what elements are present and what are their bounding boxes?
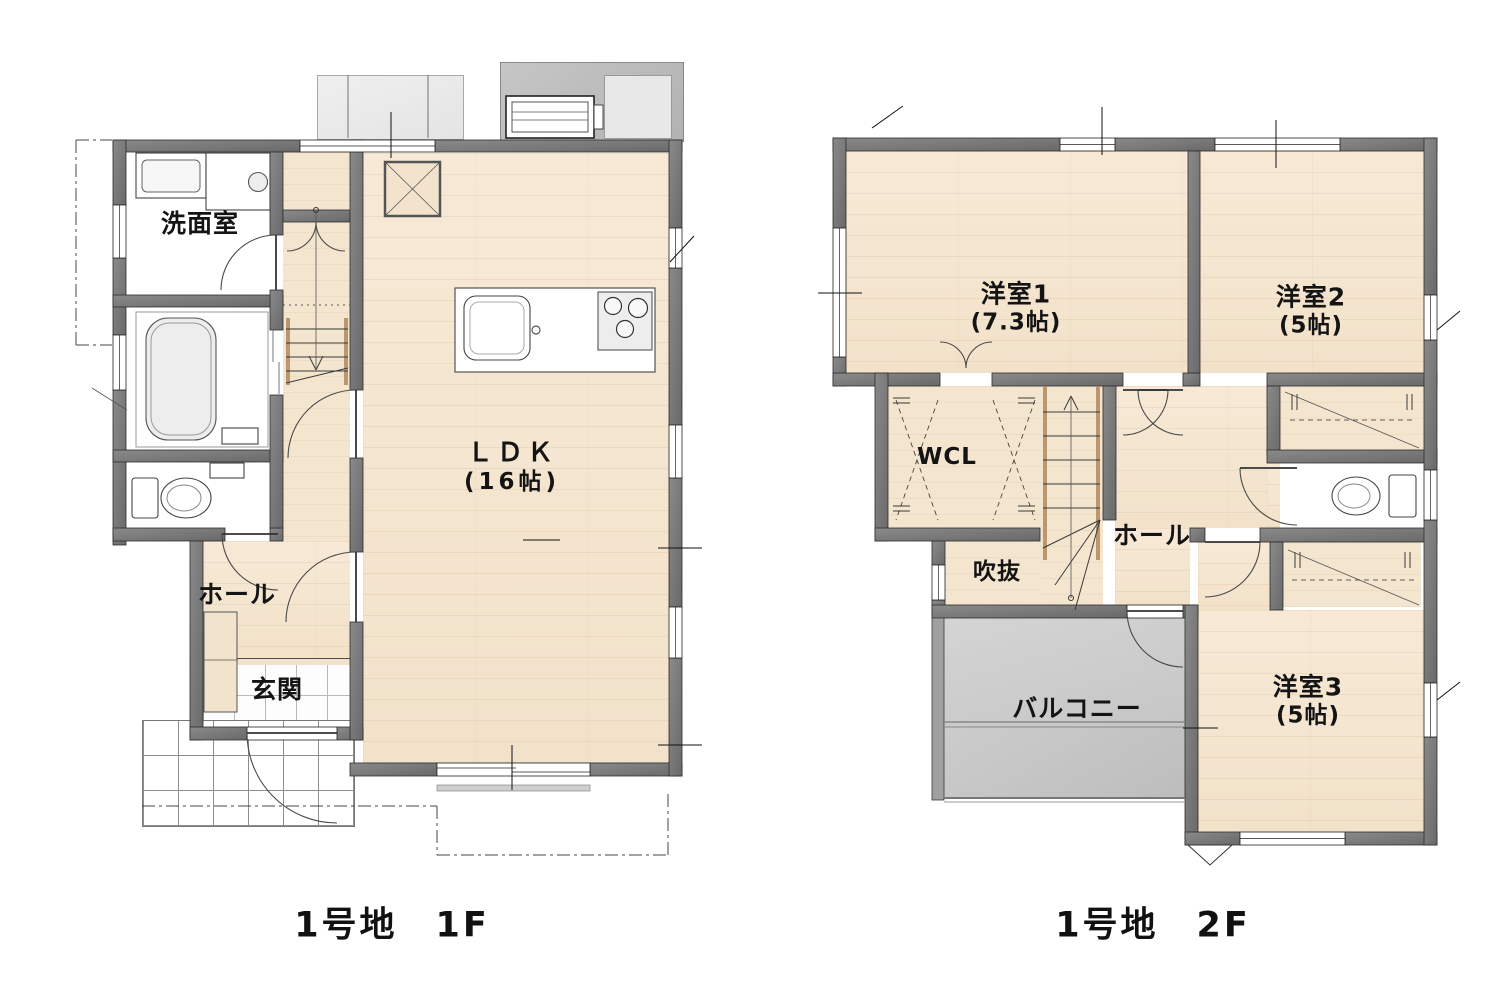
duct-shaft	[385, 162, 440, 216]
toilet-1f	[132, 463, 244, 518]
caption-floor1: 1号地 1F	[294, 897, 490, 948]
stairs-2f	[1043, 386, 1100, 610]
label-yoshitsu2: 洋室2 (5帖)	[1276, 284, 1346, 339]
label-hall-1f: ホール	[198, 581, 276, 610]
vanity-sink	[136, 153, 270, 210]
toilet-2f	[1332, 475, 1416, 517]
stairs-1f	[283, 208, 350, 386]
dimension-ticks-2f	[818, 106, 1460, 728]
label-balcony: バルコニー	[1012, 695, 1142, 724]
yoshitsu3-closet-symbols	[1288, 550, 1419, 605]
kitchen-island	[455, 288, 655, 372]
label-genkan: 玄関	[251, 676, 303, 705]
label-wcl: WCL	[917, 444, 977, 470]
caption-floor2: 1号地 2F	[1055, 897, 1251, 948]
section-marker	[1188, 845, 1232, 865]
label-ldk: ＬＤＫ (16帖)	[464, 439, 560, 495]
terrace-step	[437, 785, 590, 791]
label-fukinuke: 吹抜	[973, 559, 1021, 585]
hall-cabinet	[204, 612, 237, 712]
floor-plan-canvas: 洗面室 ＬＤＫ (16帖) ホール 玄関 洋室1 (7.3帖) 洋室2 (5帖)…	[0, 0, 1500, 1000]
label-yoshitsu1: 洋室1 (7.3帖)	[971, 281, 1062, 336]
label-senmen: 洗面室	[161, 210, 239, 239]
plan-linework	[0, 0, 1500, 1000]
canopy-lines	[348, 75, 428, 138]
balcony-railing	[944, 722, 1185, 802]
yoshitsu2-closet-symbols	[1285, 392, 1419, 448]
label-hall-2f: ホール	[1113, 522, 1191, 551]
outdoor-unit	[506, 96, 603, 138]
label-yoshitsu3: 洋室3 (5帖)	[1273, 674, 1343, 729]
bathtub	[136, 312, 268, 447]
